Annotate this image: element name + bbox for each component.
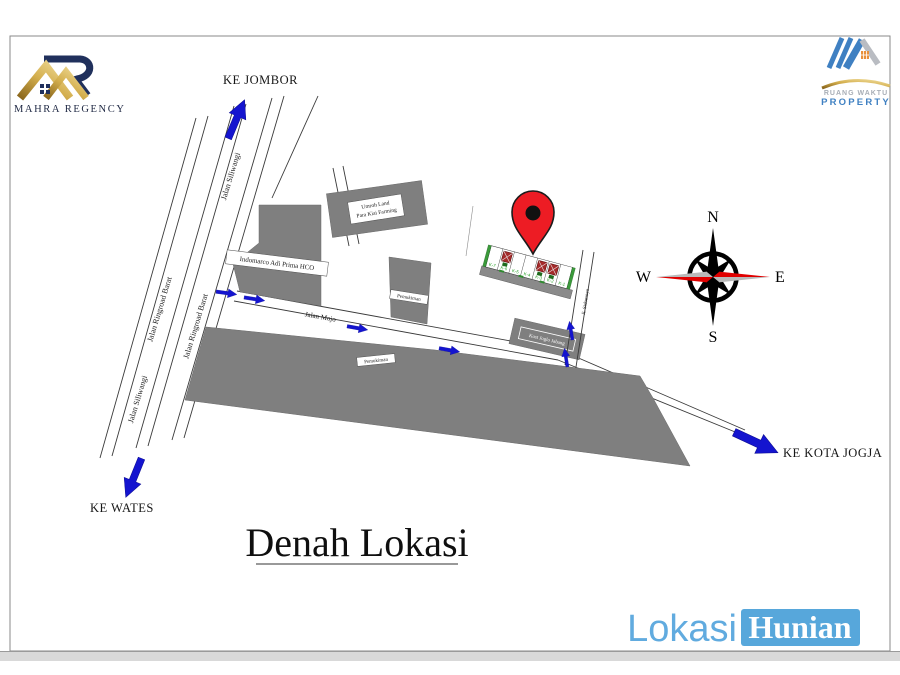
road-label-siliwangi-bottom: Jalan Siliwangi — [126, 374, 149, 424]
watermark-hunian: Hunian — [748, 609, 851, 645]
rw-logo-text-1: RUANG WAKTU — [824, 90, 888, 97]
location-map-page: MAHRA REGENCY RUANG WAKTU PROPERTY Jalan… — [0, 0, 900, 675]
denah-lokasi-map: MAHRA REGENCY RUANG WAKTU PROPERTY Jalan… — [0, 0, 900, 675]
arrow-mojo-1 — [215, 287, 237, 299]
direction-arrows — [117, 96, 782, 501]
compass-e: E — [775, 269, 785, 286]
compass-n: N — [707, 209, 719, 226]
label-ke-kota-jogja: KE KOTA JOGJA — [783, 446, 882, 460]
road-line — [272, 96, 318, 198]
page-title: Denah Lokasi — [245, 520, 468, 565]
compass-s: S — [709, 329, 718, 346]
watermark-lokasi: Lokasi — [627, 608, 737, 650]
building-pemukiman-south — [185, 327, 690, 466]
road-label-sidomoyo: Jl. Sidomoyo — [582, 288, 591, 315]
ruang-waktu-logo: RUANG WAKTU PROPERTY — [821, 38, 891, 108]
compass-rose: N S W E — [636, 209, 785, 346]
arrow-ke-wates — [117, 455, 149, 501]
road-label-ringroad-1: Jalan Ringroad Barat — [145, 275, 174, 343]
pin-body — [512, 191, 554, 254]
compass-w: W — [636, 269, 652, 286]
location-pin-icon — [512, 191, 554, 254]
mahra-logo-window — [40, 84, 50, 94]
label-ke-jombor: KE JOMBOR — [223, 73, 298, 87]
site-plan: K-7 K-6 K-5 K-4 K-3 K-2 K-1 — [479, 245, 578, 299]
minor-road-line — [466, 206, 473, 256]
mahra-logo-text: MAHRA REGENCY — [14, 104, 126, 115]
building-blocks — [185, 181, 690, 466]
road-label-siliwangi-top: Jalan Siliwangi — [219, 151, 242, 201]
road-label-mojo: Jalan Mojo — [304, 310, 337, 323]
rw-logo-swoosh — [822, 80, 890, 88]
arrow-ke-kota-jogja — [730, 423, 783, 462]
pin-hole — [526, 206, 541, 221]
mahra-regency-logo: MAHRA REGENCY — [14, 59, 126, 115]
rw-logo-text-2: PROPERTY — [821, 97, 891, 108]
watermark: Lokasi Hunian — [627, 608, 860, 650]
footer-band — [0, 652, 900, 661]
arrow-ke-jombor — [220, 96, 253, 142]
label-ke-wates: KE WATES — [90, 501, 154, 515]
